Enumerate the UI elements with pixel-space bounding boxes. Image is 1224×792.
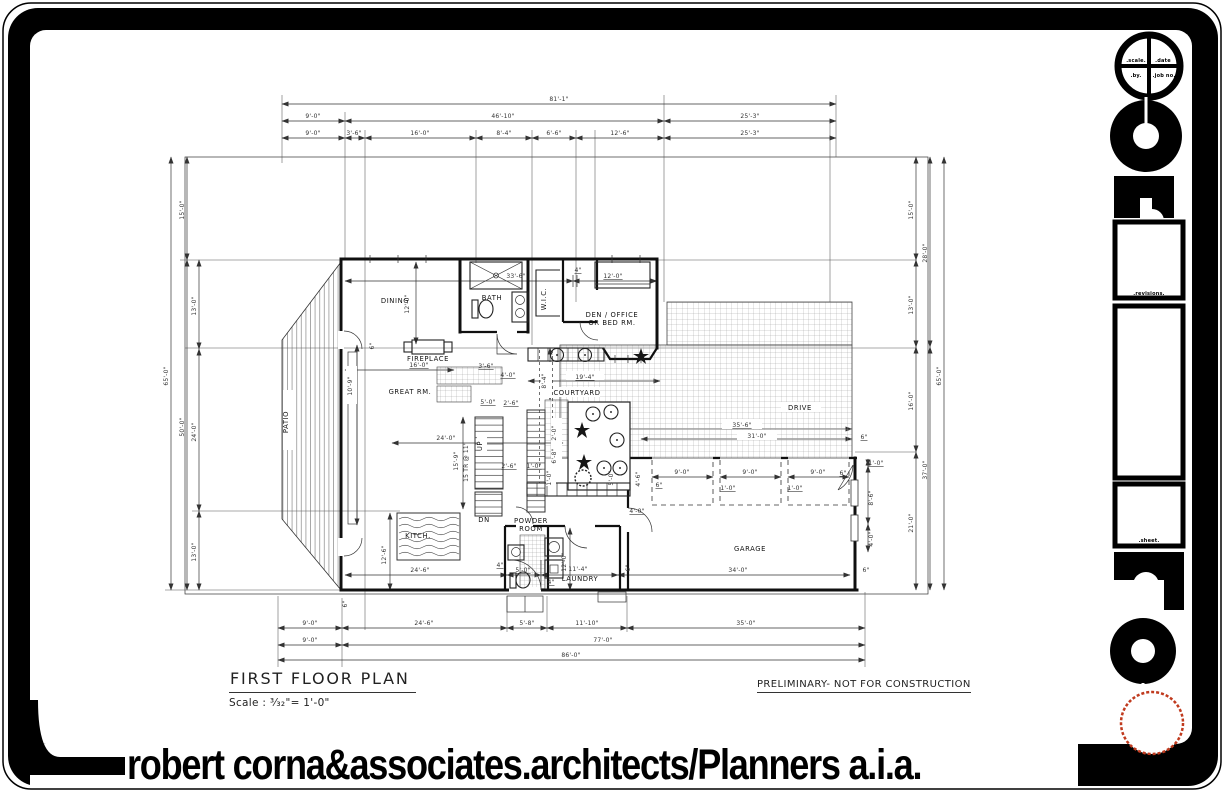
date-label: .date — [1155, 58, 1171, 64]
dim-label: 33'-6" — [506, 273, 525, 280]
dim-label: 16'-0" — [409, 362, 428, 369]
dim-label: 2'-6" — [503, 400, 518, 407]
room-label-bath: BATH — [482, 294, 502, 302]
dim-label: 9'-0" — [302, 637, 317, 644]
dim-label: 9'-0" — [305, 113, 320, 120]
dim-label: 77'-0" — [593, 637, 612, 644]
dim-label: 46'-10" — [491, 113, 514, 120]
dim-label: 16'-0" — [410, 130, 429, 137]
dim-label: 34'-0" — [728, 567, 747, 574]
dim-label: 13'-0" — [191, 542, 198, 561]
stair-label-up: UP — [476, 441, 484, 451]
dim-label: 1'-0" — [787, 485, 802, 492]
room-label-den-line2: OR BED RM. — [588, 319, 635, 327]
garage-window-1 — [851, 480, 858, 506]
dim-label: 4'-0" — [629, 508, 644, 515]
dim-label: 4" — [575, 267, 582, 274]
room-label-wic: W.I.C. — [540, 288, 548, 311]
revisions-box — [1115, 222, 1183, 298]
dim-label: 5'-0" — [480, 399, 495, 406]
drawing-sheet: .scale. .date .by. .job no. .revisions. … — [0, 0, 1224, 792]
room-label-powder-line1: POWDER — [514, 517, 548, 525]
dim-label: 12'-0" — [404, 294, 411, 313]
dim-label: 8'-4" — [496, 130, 511, 137]
stair-dn — [475, 492, 502, 516]
dim-label: 50'-0" — [179, 417, 186, 436]
dim-label: 1'-0" — [868, 460, 883, 467]
dim-label: 11'-4" — [568, 566, 587, 573]
scale-label: .scale. — [1126, 58, 1146, 64]
dim-label: 21'-0" — [908, 513, 915, 532]
dim-label: 5'-0" — [608, 470, 615, 485]
title-block: .scale. .date .by. .job no. .revisions. … — [1110, 35, 1184, 754]
stair-rail-band — [527, 410, 545, 512]
dim-label: 4'-6" — [635, 471, 642, 486]
room-label-great-rm: GREAT RM. — [389, 388, 432, 396]
dim-label: 12'-0" — [603, 273, 622, 280]
dim-label: 13'-0" — [908, 295, 915, 314]
logo-red-circle — [1121, 692, 1183, 754]
dim-label: 35'-0" — [736, 620, 755, 627]
dim-label: 3'-6" — [346, 130, 361, 137]
dim-label: 24'-0" — [436, 435, 455, 442]
room-label-courtyard: COURTYARD — [553, 389, 600, 397]
dim-label: 5'-8" — [519, 620, 534, 627]
revisions-label: .revisions. — [1133, 291, 1165, 297]
dim-label: 16'-0" — [908, 391, 915, 410]
room-label-drive: DRIVE — [788, 404, 812, 412]
preliminary-disclaimer: PRELIMINARY- NOT FOR CONSTRUCTION — [757, 679, 971, 693]
drive-paving-upper — [667, 302, 852, 345]
dim-label: 25'-3" — [740, 113, 759, 120]
sheet-label: .sheet. — [1139, 538, 1160, 544]
dim-label: 2'-6" — [501, 463, 516, 470]
room-label-laundry: LAUNDRY — [562, 575, 599, 583]
room-label-patio: PATIO — [282, 411, 290, 433]
dim-label: 1'-0" — [526, 463, 541, 470]
dim-label: 81'-1" — [549, 96, 568, 103]
room-label-den-line1: DEN / OFFICE — [586, 311, 639, 319]
courtyard-planter — [568, 402, 630, 490]
dim-label: 12'-6" — [610, 130, 629, 137]
dim-label: 6" — [863, 567, 870, 574]
room-label-garage: GARAGE — [734, 545, 766, 553]
dim-label: 15 TR @ 11" — [463, 442, 470, 482]
dim-label: 4" — [497, 562, 504, 569]
dim-label: 9'-0" — [302, 620, 317, 627]
room-label-powder-line2: ROOM — [519, 525, 543, 533]
dim-label: 15'-9" — [453, 451, 460, 470]
dim-label: 11'-10" — [575, 620, 598, 627]
dim-label: 4" — [548, 579, 555, 586]
dim-label: 86'-0" — [561, 652, 580, 659]
dim-label: 24'-6" — [410, 567, 429, 574]
dim-label: 15'-0" — [908, 200, 915, 219]
dim-label: 8'-4" — [541, 373, 548, 388]
dim-label: 6" — [861, 434, 868, 441]
by-label: .by. — [1131, 73, 1142, 79]
dim-label: 9'-0" — [674, 469, 689, 476]
dim-label: 10'-9" — [347, 376, 354, 395]
dim-label: 6" — [625, 564, 632, 571]
stair-label-dn: DN — [478, 516, 490, 524]
dim-label: 19'-4" — [575, 374, 594, 381]
dim-label: 4'-0" — [868, 531, 875, 546]
dim-label: 24'-0" — [191, 422, 198, 441]
notes-box — [1115, 306, 1183, 478]
dim-label: 2'-0" — [551, 425, 558, 440]
dim-label: 6" — [656, 482, 663, 489]
room-label-kitchen: KITCH. — [405, 532, 431, 540]
dim-label: 9'-0" — [305, 130, 320, 137]
dim-label: 8'-6" — [868, 490, 875, 505]
dim-label: 3'-6" — [478, 363, 493, 370]
floor-plan-drawing: .scale. .date .by. .job no. .revisions. … — [0, 0, 1224, 792]
dim-label: 12'-6" — [381, 545, 388, 564]
dim-label: 6" — [342, 600, 349, 607]
dim-label: 12'-0" — [561, 552, 568, 571]
sheet-number-box — [1115, 484, 1183, 546]
dim-label: 9'-0" — [810, 469, 825, 476]
scale-note: Scale : ³⁄₃₂"= 1'-0" — [229, 697, 330, 709]
garage-window-2 — [851, 515, 858, 541]
dim-label: 1'-0" — [546, 470, 553, 485]
dim-label: 24'-6" — [414, 620, 433, 627]
dim-label: 4'-0" — [500, 372, 515, 379]
job-no-label: .job no. — [1153, 73, 1176, 79]
dim-label: 1'-0" — [720, 485, 735, 492]
dim-label: 6'-8" — [551, 448, 558, 463]
dim-label: 6" — [369, 342, 376, 349]
firm-name-banner: robert corna&associates.architects/Plann… — [127, 741, 921, 790]
dim-label: 65'-0" — [163, 366, 170, 385]
dim-label: 31'-0" — [747, 433, 766, 440]
dim-label: 6" — [840, 470, 847, 477]
plan-title: FIRST FLOOR PLAN — [229, 669, 416, 693]
dim-label: 15'-0" — [179, 200, 186, 219]
dim-label: 5'-0" — [515, 567, 530, 574]
dim-label: 37'-0" — [922, 460, 929, 479]
dim-label: 25'-3" — [740, 130, 759, 137]
entry-steps-lower — [437, 386, 471, 402]
dim-label: 65'-0" — [936, 366, 943, 385]
dim-label: 28'-0" — [922, 243, 929, 262]
dim-label: 35'-6" — [732, 422, 751, 429]
dim-label: 6'-6" — [546, 130, 561, 137]
dim-label: 9'-0" — [742, 469, 757, 476]
dim-label: 13'-0" — [191, 296, 198, 315]
